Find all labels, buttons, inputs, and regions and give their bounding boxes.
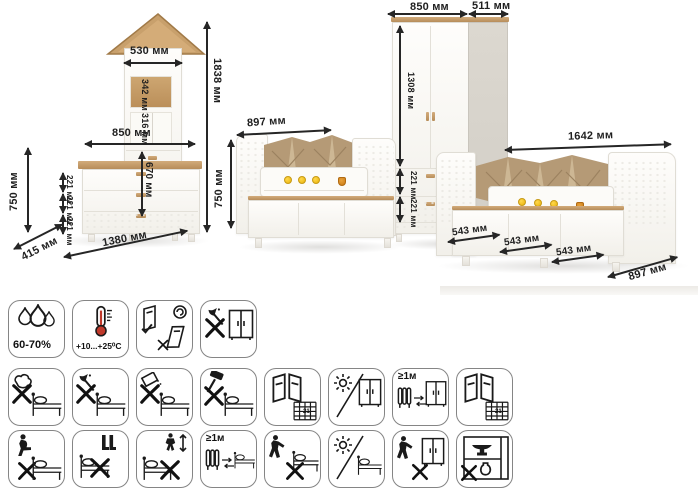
dimension-arrow	[141, 152, 143, 216]
bee-decal	[298, 176, 306, 184]
no-dragging-wardrobe-icon	[392, 430, 449, 488]
no-direct-sunlight-wardrobe-icon	[328, 368, 385, 426]
dimension-arrow	[399, 26, 401, 166]
dimension-arrow	[399, 169, 401, 194]
dim-wardrobe-door-height: 1308 мм	[406, 72, 416, 109]
furniture-spec-sheet: 530 мм 1838 мм 850 мм 342 мм 316 мм 670 …	[0, 0, 700, 493]
crib-leg	[255, 238, 262, 248]
dim-tower-width: 530 мм	[130, 45, 169, 57]
days-value: 21	[495, 409, 502, 415]
dim-shelf-top: 342 мм	[140, 79, 150, 111]
humidity-icon: 60-70%	[8, 300, 65, 358]
dim-drawer-height: 221 мм	[409, 171, 418, 200]
wardrobe-handle-right	[432, 112, 435, 121]
crib-rail-slat-seam	[264, 190, 364, 191]
dim-crib-height: 750 мм	[213, 169, 225, 208]
tower-door-seam	[126, 150, 180, 151]
dresser-top	[78, 161, 202, 169]
crib-leg	[384, 238, 391, 248]
tower-shelf-divider	[152, 113, 153, 144]
dim-total-height: 1838 мм	[211, 58, 223, 103]
dim-tower-door-height: 670 мм	[143, 162, 154, 197]
distance-value: ≥1м	[206, 433, 224, 444]
dim-crib-width: 897 мм	[247, 115, 287, 130]
wardrobe-leg	[396, 234, 402, 242]
furniture-scene: 530 мм 1838 мм 850 мм 342 мм 316 мм 670 …	[0, 0, 700, 296]
ventilation-window-icon-2: 21	[456, 368, 513, 426]
crib-drawer-seam	[298, 203, 299, 235]
heater-distance-bed-icon: ≥1м	[200, 430, 257, 488]
crib-base	[248, 200, 394, 238]
wardrobe-drawer-handle-1	[426, 174, 435, 178]
crib-drawer-seam	[344, 203, 345, 235]
no-sharp-tools-wardrobe-icon	[200, 300, 257, 358]
no-hammering-bed-icon	[200, 368, 257, 426]
dim-wardrobe-width: 850 мм	[410, 1, 449, 13]
no-abrasive-powder-bed-icon	[136, 368, 193, 426]
honey-pot-decal	[338, 177, 346, 186]
heater-distance-wardrobe-icon: ≥1м	[392, 368, 449, 426]
dimension-arrow	[388, 13, 467, 15]
distance-value: ≥1м	[398, 371, 416, 382]
care-icons-row-2: 21 ≥1м 21	[8, 368, 513, 426]
shadow-crib	[238, 240, 403, 254]
dimension-arrow	[62, 194, 64, 213]
no-standing-on-bed-icon	[72, 430, 129, 488]
bed-leg	[462, 256, 470, 266]
floor-band	[440, 286, 698, 295]
dim-dresser-height: 750 мм	[8, 172, 20, 211]
temperature-icon: +10...+25⁰С	[72, 300, 129, 358]
dimension-arrow	[62, 173, 64, 192]
dimension-arrow	[469, 13, 508, 15]
no-dragging-bed-icon	[264, 430, 321, 488]
dim-bed-length: 1642 мм	[568, 129, 614, 143]
door-mounting-icon	[136, 300, 193, 358]
dimension-arrow	[27, 148, 29, 232]
dim-drawer-height: 221 мм	[409, 199, 418, 228]
dimension-arrow	[206, 22, 208, 232]
bee-decal	[312, 176, 320, 184]
days-value: 21	[303, 409, 310, 415]
dim-dresser-depth: 415 мм	[19, 235, 59, 263]
care-icons-row-3: ≥1м	[8, 430, 513, 488]
wardrobe-handle-left	[426, 112, 429, 121]
dim-shelf-middle: 316 мм	[140, 113, 150, 145]
tower-door-handle	[148, 156, 157, 160]
no-sitting-on-edge-icon	[8, 430, 65, 488]
care-icons-row-1: 60-70% +10...+25⁰С	[8, 300, 257, 358]
humidity-value: 60-70%	[13, 339, 51, 351]
bee-decal	[518, 198, 526, 206]
dimension-arrow	[124, 62, 182, 64]
no-jumping-on-bed-icon	[136, 430, 193, 488]
temperature-value: +10...+25⁰С	[76, 341, 121, 352]
ventilation-window-icon: 21	[264, 368, 321, 426]
dresser-leg	[188, 234, 195, 242]
wardrobe-door-gap	[430, 26, 431, 168]
dresser-leg	[88, 234, 95, 242]
tower-shelf-open-1	[130, 76, 172, 108]
no-axe-bed-icon	[72, 368, 129, 426]
dimension-arrow	[230, 140, 232, 228]
bed-leg	[540, 258, 548, 268]
no-heavy-items-inside-icon	[456, 430, 513, 488]
bee-decal	[284, 176, 292, 184]
no-direct-sunlight-bed-icon	[328, 430, 385, 488]
no-wet-cleaning-bed-icon	[8, 368, 65, 426]
dimension-arrow	[399, 197, 401, 222]
